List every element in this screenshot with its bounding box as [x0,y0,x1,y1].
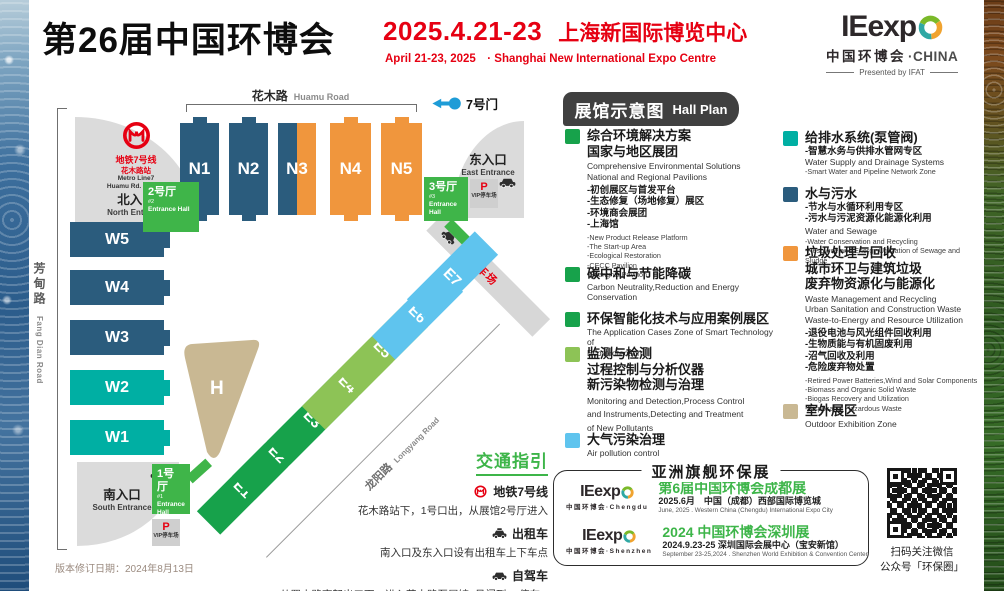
legend-en: Monitoring and Detection,Process Control [587,395,744,409]
legend-sub-en: -Ecological Restoration [587,251,741,260]
hall-label: W2 [105,379,129,397]
hall-w1: W1 [70,420,164,455]
legend-en: The Application Cases Zone of Smart Tech… [587,327,777,348]
logo-o-icon [623,530,636,543]
logo-o-icon [621,486,634,499]
fangdian-road-bracket [57,108,67,550]
legend-header-cn: 展馆示意图 [575,97,665,122]
hall-label: W1 [105,429,129,447]
legend-swatch [565,267,580,282]
show-date-venue-en: September 23-25,2024 . Shenzhen World Ex… [662,551,867,559]
hall-n5: N5 [381,123,422,215]
expo-hall-plan-page: 第26届中国环博会 2025.4.21-23 上海新国际博览中心 April 2… [0,0,1004,591]
logo-sub-text: 中国环博会·Chengdu [566,501,648,511]
legend-en: Waste-to-Energy and Resource Utilization [805,315,977,326]
hall-label: W3 [105,329,129,347]
huamu-road-cn: 花木路 [252,89,288,103]
legend-en: Comprehensive Environmental Solutions [587,161,741,172]
qr-finder [940,468,957,485]
hall-label: E7 [440,264,465,289]
hall-label: H [210,378,224,400]
traffic-car-label: 自驾车 [492,567,548,584]
legend-swatch [783,246,798,261]
hall-plan-legend-header: 展馆示意图 Hall Plan [563,92,739,126]
presented-by-text: Presented by IFAT [859,68,925,77]
legend-title: 大气污染治理 [587,432,665,448]
vip-parking-label: VIP停车场 [152,533,180,540]
ieexpo-shenzhen-logo: IEexp 中国环博会·Shenzhen [566,528,652,555]
gate7-arrow-icon [430,96,462,111]
metro-logo-icon [473,485,488,498]
legend-sub: -生态修复（场地修复）展区 [587,196,741,207]
legend-sub: -污水与污泥资源化能源化利用 [805,213,983,224]
hall-n3: N3 [278,123,316,215]
legend-sub: -初创展区与首发平台 [587,185,741,196]
ieexpo-logo: IEexp 中国环博会·CHINA Presented by IFAT [826,12,958,77]
legend-en: National and Regional Pavilions [587,172,741,183]
show-date-venue-en: June, 2025 . Western China (Chengdu) Int… [658,507,833,515]
ieexpo-chengdu-logo: IEexp 中国环博会·Chengdu [566,484,648,511]
hall-label: N1 [189,159,211,179]
legend-sub: -智慧水务与供排水管网专区 [805,146,944,157]
traffic-metro-desc: 花木路站下，1号口出，从展馆2号厅进入 [358,503,548,518]
hall-label: N4 [340,159,362,179]
taxi-label-text: 出租车 [512,525,548,542]
huamu-road-label: 花木路Huamu Road [186,87,415,105]
vip-parking-south: P VIP停车场 [152,519,180,546]
legend-header-en: Hall Plan [673,102,728,117]
legend-sub-en: -The Start-up Area [587,242,741,251]
legend-item-air: 大气污染治理 Air pollution control [565,432,777,458]
hall-w4: W4 [70,270,164,305]
hall-w3: W3 [70,320,164,355]
legend-swatch [783,187,798,202]
traffic-taxi-label: 出租车 [492,525,548,542]
hall-label: N2 [238,159,260,179]
legend-title: 碳中和与节能降碳 [587,266,777,282]
traffic-guide-title: 交通指引 [476,447,548,476]
legend-sub-en: -Retired Power Batteries,Wind and Solar … [805,376,977,385]
legend-en: Air pollution control [587,448,665,459]
legend-sub-en: -Biomass and Organic Solid Waste [805,385,977,394]
hall1-cn: 1号厅 [157,468,185,494]
legend-en: Urban Sanitation and Construction Waste [805,304,977,315]
legend-swatch [565,129,580,144]
legend-title: 废弃物资源化与能源化 [805,276,977,292]
hall2-en: Entrance Hall [148,206,194,214]
event-venue-cn: 上海新国际博览中心 [558,17,747,47]
parking-p: P [152,521,180,533]
ieexpo-brand-text: IEexp [582,528,622,544]
hall3-cn: 3号厅 [429,181,463,194]
version-note: 版本修订日期：2024年8月13日 [55,560,194,575]
logo-sub-text: 中国环博会·Shenzhen [566,545,652,555]
hall3-en: Entrance Hall [429,201,463,217]
show-name: 2024 中国环博会深圳展 [662,524,867,540]
legend-en: Water Supply and Drainage Systems [805,157,944,168]
hall-label: W4 [105,279,129,297]
hall-label: N5 [391,159,413,179]
legend-title: 新污染物检测与治理 [587,377,744,393]
huamu-road-bracket [186,104,417,112]
fangdian-road-en: Fang Dian Road [35,316,44,384]
qr-finder [887,468,904,485]
ieexpo-brand: IEexp [841,12,943,42]
legend-title: 水与污水 [805,186,983,202]
ieexpo-brand: IEexp [582,528,636,544]
gate7-label: 7号门 [466,94,498,113]
legend-title: 监测与检测 [587,346,744,362]
traffic-metro-label: 地铁7号线 [473,483,548,500]
right-photo-strip [984,0,1004,591]
metro-label-text: 地铁7号线 [493,483,548,500]
metro-line-cn: 地铁7号线 [75,155,197,166]
qr-finder [887,521,904,538]
qr-caption-line2: 公众号「环保圈」 [880,560,964,575]
dash-right [930,72,958,73]
legend-sub: -危险废弃物处置 [805,362,977,373]
legend-sub: -生物质能与有机固废利用 [805,339,977,350]
hall-label: N3 [286,159,308,179]
shenzhen-show-info: 2024 中国环博会深圳展 2024.9.23-25 深圳国际会展中心（宝安新馆… [662,524,867,559]
hall2-number: #2 [148,199,194,206]
metro-logo-icon [122,121,151,150]
entrance-hall-3: 3号厅 #3 Entrance Hall [424,177,468,221]
legend-sub: -节水与水循环利用专区 [805,202,983,213]
event-date-venue: 2025.4.21-23 上海新国际博览中心 [383,16,747,47]
logo-china-text: ·CHINA [908,49,958,64]
event-date-venue-en: April 21-23, 2025 · Shanghai New Interna… [385,50,716,66]
show-name: 第6届中国环博会成都展 [658,480,833,496]
legend-item-water-supply: 给排水系统(泵管阀) -智慧水务与供排水管网专区 Water Supply an… [783,130,983,177]
entrance-hall-1: 1号厅 #1 Entrance Hall [152,464,190,514]
flagship-chengdu-row: IEexp 中国环博会·Chengdu 第6届中国环博会成都展 2025.6月 … [566,480,868,515]
fangdian-road-cn: 芳甸路 [31,262,48,307]
qr-code [887,468,957,538]
legend-title: 过程控制与分析仪器 [587,362,744,378]
hall1-number: #1 [157,494,185,501]
hall-h: H [176,336,268,468]
traffic-guide: 交通指引 地铁7号线 花木路站下，1号口出，从展馆2号厅进入 出租车 南入口及东… [280,447,548,591]
traffic-car-desc: 从罗山路高架出口下，进入花木路至展馆7号门到P1停车场 [280,587,548,591]
legend-item-carbon: 碳中和与节能降碳 Carbon Neutrality,Reduction and… [565,266,777,303]
taxi-icon [492,527,507,540]
page-title: 第26届中国环博会 [42,12,335,63]
event-date: 2025.4.21-23 [383,16,542,47]
flagship-shenzhen-row: IEexp 中国环博会·Shenzhen 2024 中国环博会深圳展 2024.… [566,524,868,559]
dash-left [826,72,854,73]
legend-sub: -退役电池与风光组件回收利用 [805,328,977,339]
ieexpo-brand: IEexp [580,484,634,500]
legend-en: Carbon Neutrality,Reduction and Energy C… [587,282,777,303]
legend-title: 城市环卫与建筑垃圾 [805,261,977,277]
wechat-qr-block: 扫码关注微信 公众号「环保圈」 [880,468,964,575]
logo-cn-line: 中国环博会·CHINA [826,45,958,65]
legend-en: Water and Sewage [805,226,983,237]
legend-item-outdoor: 室外展区 Outdoor Exhibition Zone [783,403,983,429]
flagship-shows-box: 亚洲旗舰环保展 IEexp 中国环博会·Chengdu 第6届中国环博会成 [553,470,869,566]
gate-7: 7号门 [430,94,498,113]
legend-sub: -上海馆 [587,219,741,230]
traffic-taxi-desc: 南入口及东入口设有出租车上下车点 [380,545,548,560]
show-date-venue: 2025.6月 中国（成都）西部国际博览城 [658,496,833,507]
car-label-text: 自驾车 [512,567,548,584]
entrance-hall-2: 2号厅 #2 Entrance Hall [143,182,199,232]
hall-h-shape [176,336,268,468]
legend-en: and Instruments,Detecting and Treatment [587,408,744,422]
east-entrance-cn: 东入口 [452,153,524,168]
legend-item-monitoring: 监测与检测 过程控制与分析仪器 新污染物检测与治理 Monitoring and… [565,346,777,435]
legend-sub: -环境商会展团 [587,208,741,219]
legend-title: 环保智能化技术与应用案例展区 [587,311,777,327]
legend-sub-en: -Smart Water and Pipeline Network Zone [805,167,944,176]
legend-swatch [565,433,580,448]
legend-swatch [565,312,580,327]
legend-item-comprehensive: 综合环境解决方案 国家与地区展团 Comprehensive Environme… [565,128,777,280]
huamu-road-en: Huamu Road [294,92,350,102]
hall2-cn: 2号厅 [148,186,194,199]
hall3-number: #3 [429,194,463,201]
qr-caption-line1: 扫码关注微信 [880,545,964,560]
show-date-venue: 2024.9.23-25 深圳国际会展中心（宝安新馆） [662,540,867,551]
parking-p: P [470,181,498,193]
legend-title: 室外展区 [805,403,897,419]
hall-w2: W2 [70,370,164,405]
vip-parking-label: VIP停车场 [470,193,498,200]
hall1-en: Entrance Hall [157,501,185,517]
chengdu-show-info: 第6届中国环博会成都展 2025.6月 中国（成都）西部国际博览城 June, … [658,480,833,515]
legend-swatch [565,347,580,362]
legend-swatch [783,131,798,146]
taxi-icon [499,176,516,188]
legend-swatch [783,404,798,419]
logo-cn-text: 中国环博会 [826,49,906,64]
legend-sub-en: -New Product Release Platform [587,233,741,242]
ieexpo-brand-text: IEexp [841,12,916,42]
legend-en: Waste Management and Recycling [805,294,977,305]
legend-sub: -沼气回收及利用 [805,351,977,362]
legend-en: Outdoor Exhibition Zone [805,419,897,430]
legend-item-waste: 垃圾处理与回收 城市环卫与建筑垃圾 废弃物资源化与能源化 Waste Manag… [783,245,983,413]
logo-o-icon [918,15,943,40]
flagship-title: 亚洲旗舰环保展 [641,461,780,482]
logo-presented-by: Presented by IFAT [826,68,958,77]
legend-title: 垃圾处理与回收 [805,245,977,261]
hall-label: W5 [105,231,129,249]
hall-n4: N4 [330,123,371,215]
metro-station-cn: 花木路站 [75,166,197,175]
car-icon [492,569,507,582]
legend-title: 给排水系统(泵管阀) [805,130,944,146]
legend-title: 国家与地区展团 [587,144,741,160]
vip-parking-east: P VIP停车场 [470,179,498,208]
hall-n2: N2 [229,123,268,215]
left-photo-strip [0,0,29,591]
legend-title: 综合环境解决方案 [587,128,741,144]
ieexpo-brand-text: IEexp [580,484,620,500]
